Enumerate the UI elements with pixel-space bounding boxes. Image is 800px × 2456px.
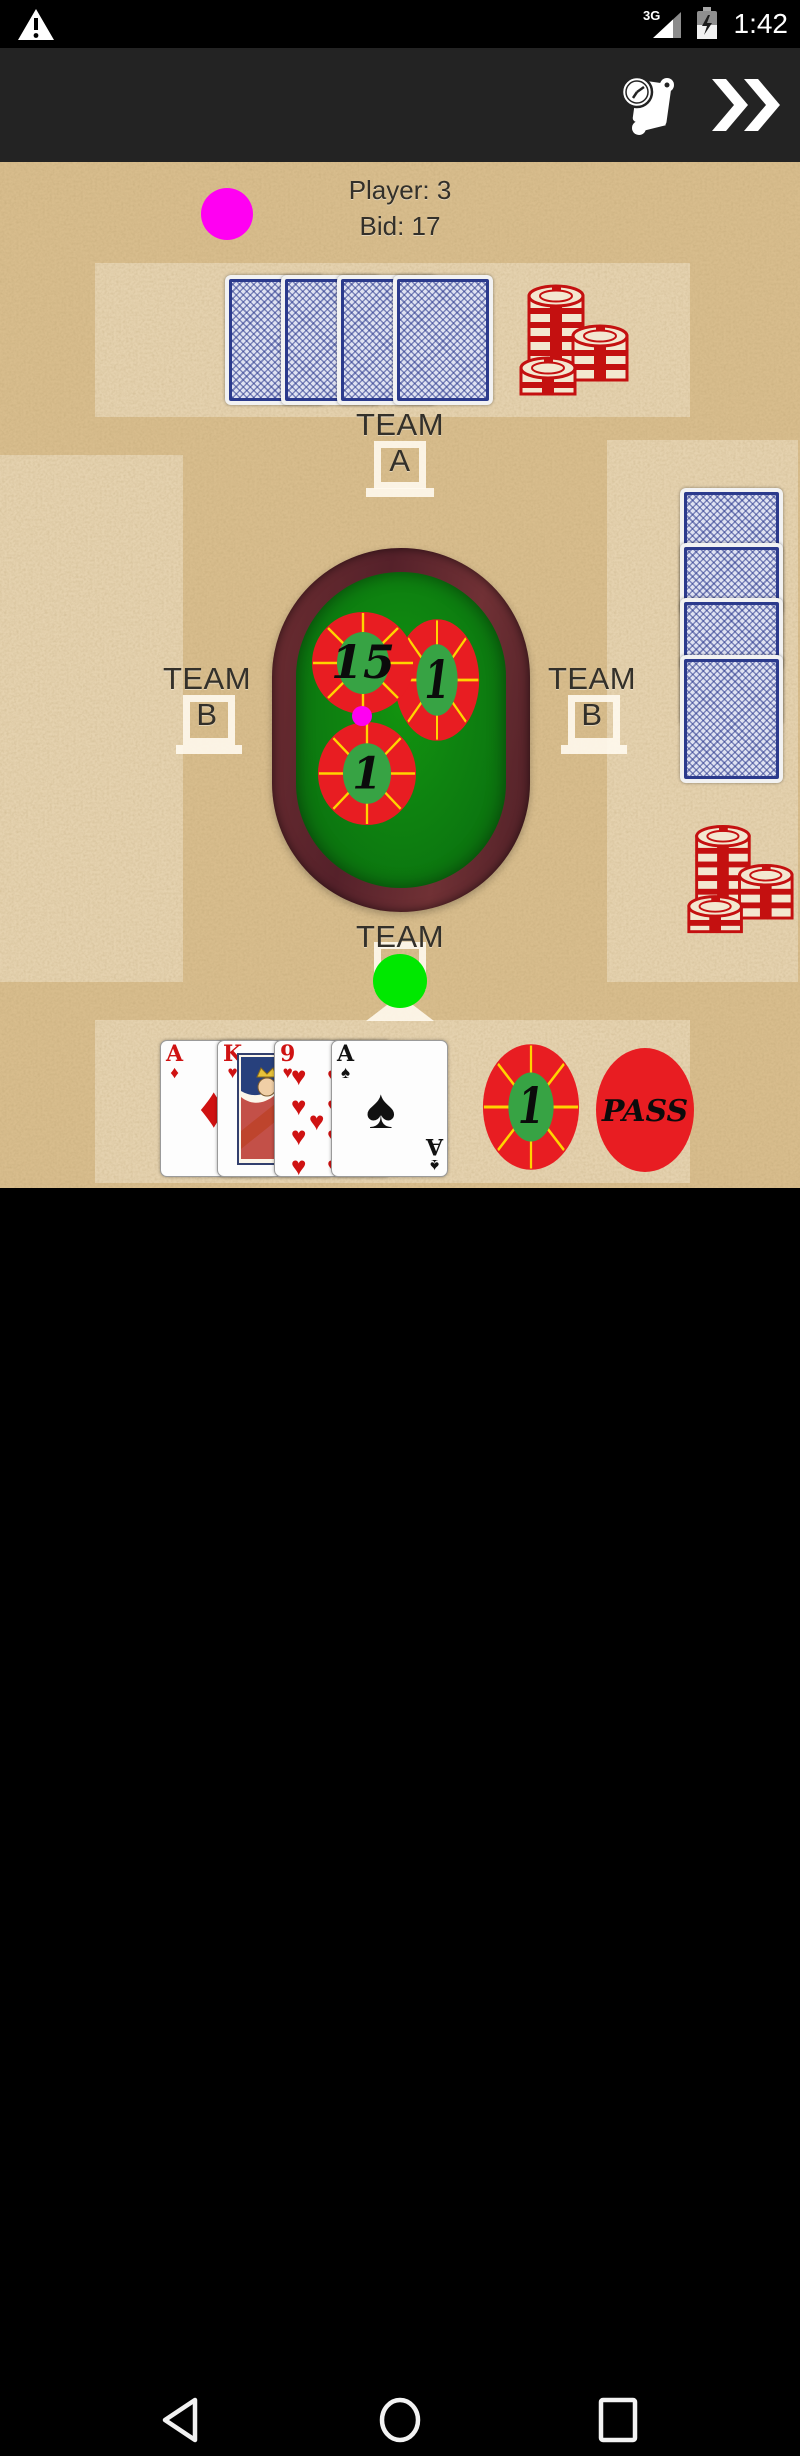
card-pip: ♥: [291, 1123, 306, 1149]
chip-stack-icon: [683, 822, 795, 942]
current-player-label: Player: 3: [250, 172, 550, 208]
clock-time: 1:42: [734, 7, 789, 41]
pot-chip-value: 1: [424, 649, 449, 711]
team-b-left-name: TEAM: [127, 662, 287, 696]
home-circle-icon: [375, 2394, 425, 2446]
pot-chip: 1: [317, 721, 417, 826]
turn-marker-dot: [352, 706, 372, 726]
card-pip: ♥: [291, 1153, 306, 1179]
double-chevron-right-icon: [710, 75, 782, 135]
pot-chip-value: 15: [331, 635, 395, 689]
pot-chip-value: 1: [352, 748, 381, 800]
status-bar: 3G 1:42: [0, 0, 800, 48]
team-bottom-name: TEAM: [300, 920, 500, 954]
pass-label: PASS: [601, 1094, 688, 1129]
warning-triangle-icon: [16, 6, 56, 44]
recents-square-icon: [595, 2394, 641, 2446]
nav-back-button[interactable]: [148, 2384, 212, 2456]
chip-stack-icon: [515, 282, 630, 404]
active-player-indicator: [373, 954, 427, 1008]
team-b-right-name: TEAM: [512, 662, 672, 696]
bid-chip-value: 1: [518, 1078, 544, 1135]
back-triangle-icon: [157, 2394, 203, 2446]
current-bid-label: Bid: 17: [250, 208, 550, 244]
cell-signal-icon: [652, 12, 682, 38]
team-b-right-letter: B: [512, 698, 672, 732]
score-scroll-clock-icon: [615, 70, 681, 140]
card-rank: A: [337, 1043, 354, 1065]
card-rank: A: [166, 1043, 183, 1065]
pot-chip: 15: [311, 611, 415, 715]
score-history-button[interactable]: [608, 60, 688, 150]
team-a-name: TEAM: [300, 408, 500, 442]
team-a-slot-base: [366, 488, 434, 497]
nav-home-button[interactable]: [368, 2384, 432, 2456]
android-nav-bar: [0, 1188, 800, 1280]
nav-recents-button[interactable]: [586, 2384, 650, 2456]
card-pip: ♥: [291, 1063, 306, 1089]
facedown-card: [393, 275, 493, 405]
bid-chip-button[interactable]: 1: [482, 1043, 580, 1171]
team-b-left-slot-base: [176, 745, 242, 754]
card-rank: A: [426, 1135, 443, 1157]
team-b-left-letter: B: [127, 698, 287, 732]
pass-button[interactable]: PASS: [595, 1047, 695, 1173]
card-pip: ♥: [291, 1093, 306, 1119]
card-center-pip: ♠: [366, 1081, 396, 1137]
bidding-player-indicator: [201, 188, 253, 240]
game-area: Player: 3 Bid: 17: [0, 162, 800, 1188]
action-bar: [0, 48, 800, 162]
facedown-card: [680, 655, 783, 783]
team-a-letter: A: [300, 444, 500, 478]
card-pip: ♥: [309, 1108, 324, 1134]
bid-info: Player: 3 Bid: 17: [250, 172, 550, 244]
team-b-right-slot-base: [561, 745, 627, 754]
hand-card-ace-spades[interactable]: A ♠ ♠ ♠ A: [331, 1040, 448, 1177]
battery-charging-icon: [694, 7, 720, 41]
skip-fast-forward-button[interactable]: [706, 60, 786, 150]
card-suit: ♠: [426, 1157, 443, 1174]
